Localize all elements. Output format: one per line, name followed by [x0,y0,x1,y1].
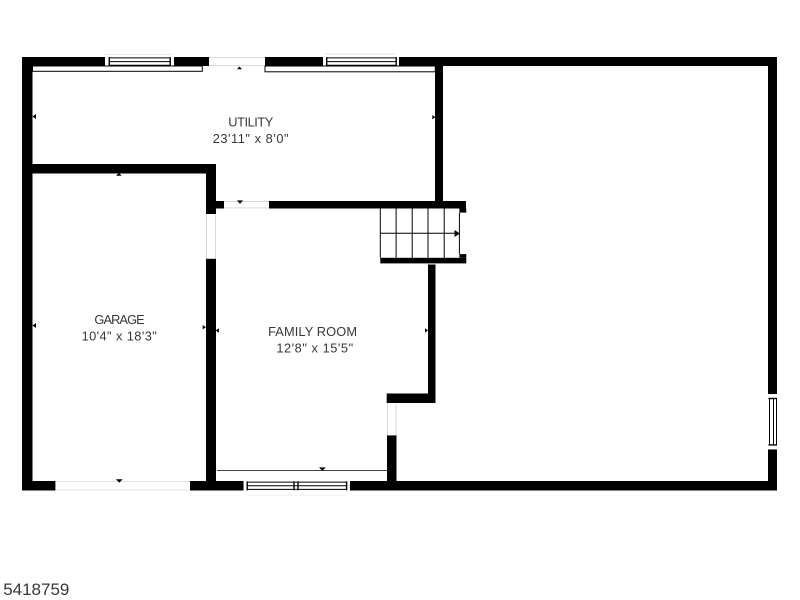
svg-text:12'8" x 15'5": 12'8" x 15'5" [276,341,353,356]
svg-text:5418759: 5418759 [3,580,69,599]
svg-text:10'4" x 18'3": 10'4" x 18'3" [82,329,158,344]
svg-text:FAMILY ROOM: FAMILY ROOM [268,324,357,339]
svg-text:23'11" x 8'0": 23'11" x 8'0" [213,131,289,146]
svg-text:UTILITY: UTILITY [228,114,274,129]
svg-text:GARAGE: GARAGE [94,312,144,327]
